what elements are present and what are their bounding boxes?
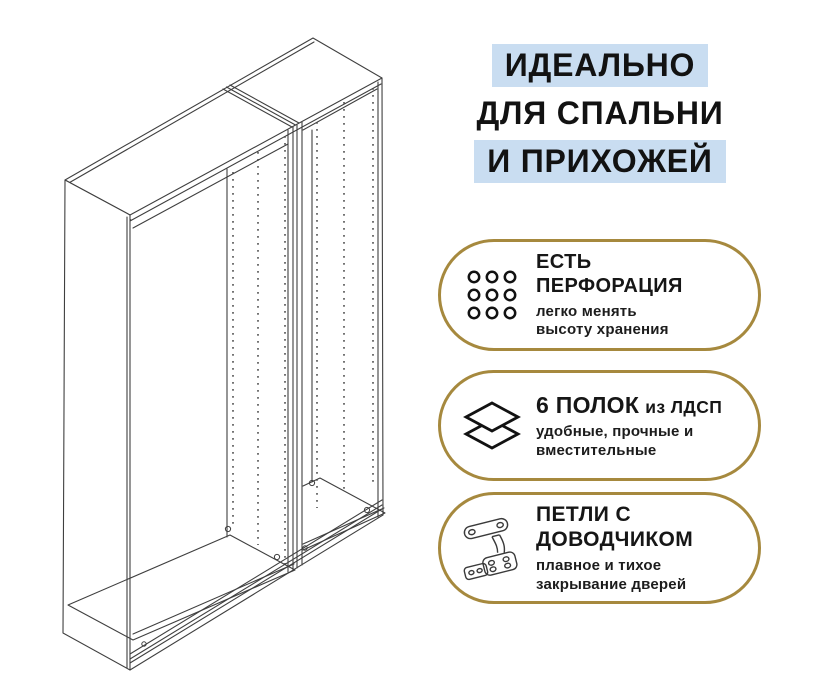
- headline: ИДЕАЛЬНО ДЛЯ СПАЛЬНИ И ПРИХОЖЕЙ: [436, 44, 764, 183]
- infographic-canvas: ИДЕАЛЬНО ДЛЯ СПАЛЬНИ И ПРИХОЖЕЙ ЕСТЬ ПЕР…: [0, 0, 816, 700]
- feature-title-line: ПЕРФОРАЦИЯ: [536, 274, 683, 298]
- shelves-material-label: из ЛДСП: [645, 397, 722, 417]
- feature-badge-shelves: 6 ПОЛОКиз ЛДСП удобные, прочные и вмести…: [438, 370, 761, 481]
- headline-line-1: ИДЕАЛЬНО: [492, 44, 709, 87]
- shelves-layers-icon: [461, 399, 523, 453]
- feature-text-shelves: 6 ПОЛОКиз ЛДСП удобные, прочные и вмести…: [536, 391, 722, 461]
- feature-subtitle-line: легко менять: [536, 303, 683, 322]
- feature-title-line: ДОВОДЧИКОМ: [536, 527, 693, 553]
- feature-text-perforation: ЕСТЬ ПЕРФОРАЦИЯ легко менять высоту хран…: [536, 250, 683, 340]
- headline-row-2: ДЛЯ СПАЛЬНИ: [463, 92, 736, 135]
- feature-badge-perforation: ЕСТЬ ПЕРФОРАЦИЯ легко менять высоту хран…: [438, 239, 761, 351]
- feature-subtitle-line: плавное и тихое: [536, 557, 693, 576]
- feature-subtitle-line: вместительные: [536, 442, 722, 461]
- feature-subtitle-line: удобные, прочные и: [536, 423, 722, 442]
- perforation-grid-icon: [461, 270, 523, 320]
- feature-subtitle-line: высоту хранения: [536, 321, 683, 340]
- headline-line-3: И ПРИХОЖЕЙ: [474, 140, 725, 183]
- shelves-count-label: 6 ПОЛОК: [536, 392, 639, 418]
- headline-line-2: ДЛЯ СПАЛЬНИ: [463, 92, 736, 135]
- feature-title-line: ЕСТЬ: [536, 250, 683, 274]
- feature-title-line: ПЕТЛИ С: [536, 502, 693, 528]
- wardrobe-frame-illustration: [40, 20, 400, 680]
- headline-row-3: И ПРИХОЖЕЙ: [474, 140, 725, 183]
- feature-subtitle-line: закрывание дверей: [536, 576, 693, 595]
- feature-text-hinges: ПЕТЛИ С ДОВОДЧИКОМ плавное и тихое закры…: [536, 502, 693, 594]
- feature-title-line: 6 ПОЛОКиз ЛДСП: [536, 391, 722, 419]
- hinge-icon: [461, 509, 523, 587]
- headline-row-1: ИДЕАЛЬНО: [492, 44, 709, 87]
- feature-badge-hinges: ПЕТЛИ С ДОВОДЧИКОМ плавное и тихое закры…: [438, 492, 761, 604]
